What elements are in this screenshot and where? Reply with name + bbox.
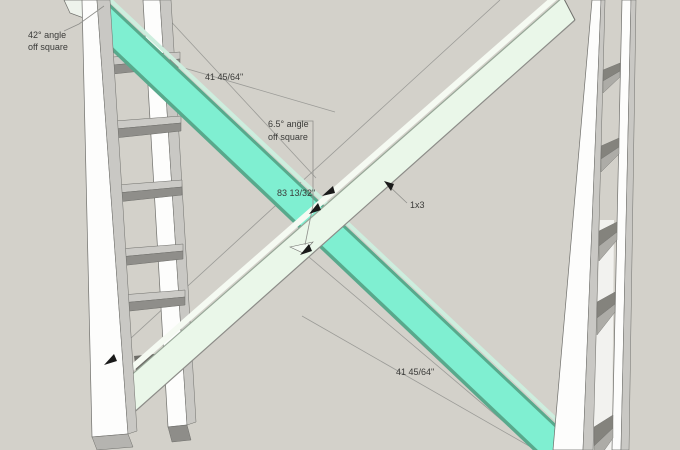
drawing-canvas[interactable]: 42° angle off square 41 45/64" 6.5° angl… (0, 0, 680, 450)
left-ladder-near-rail-endcap[interactable] (92, 434, 133, 450)
label-angle-top-line2: off square (28, 42, 68, 52)
label-dim-top: 41 45/64" (205, 72, 243, 82)
label-part: 1x3 (410, 200, 425, 210)
left-ladder-far-rail-endcap[interactable] (168, 425, 191, 442)
model-viewport[interactable]: 42° angle off square 41 45/64" 6.5° angl… (0, 0, 680, 450)
label-dim-full: 83 13/32" (277, 188, 315, 198)
label-angle-center-line2: off square (268, 132, 308, 142)
label-dim-bottom: 41 45/64" (396, 367, 434, 377)
label-angle-top-line1: 42° angle (28, 30, 66, 40)
label-angle-center-line1: 6.5° angle (268, 119, 309, 129)
